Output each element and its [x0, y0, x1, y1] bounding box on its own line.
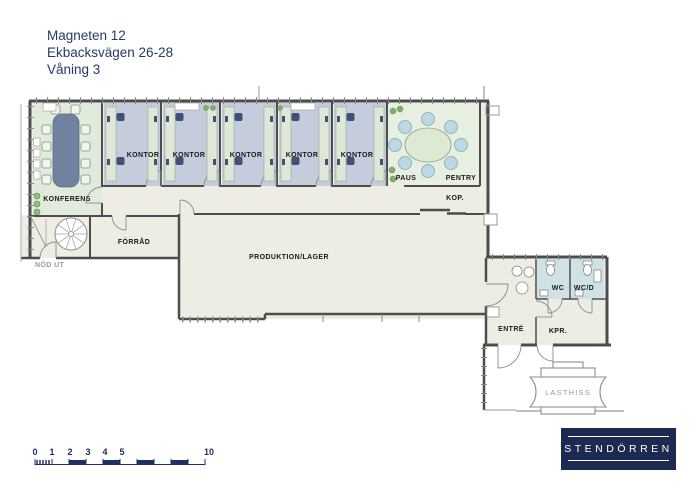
spiral-stair — [55, 218, 87, 250]
stendorren-logo: STENDÖRREN — [561, 428, 676, 470]
scale-0: 0 — [32, 447, 37, 457]
label-kop: KOP. — [446, 195, 464, 202]
label-entre: ENTRÉ — [498, 324, 524, 333]
label-forrad: FÖRRÅD — [118, 237, 150, 246]
label-produktion: PRODUKTION/LAGER — [249, 254, 329, 261]
label-nod-ut: NÖD UT — [35, 260, 65, 269]
label-kontor-1: KONTOR — [127, 152, 160, 159]
label-konferens: KONFERENS — [43, 196, 91, 203]
label-wc: WC — [552, 285, 564, 292]
label-kontor-2: KONTOR — [173, 152, 206, 159]
scale-1: 1 — [49, 447, 54, 457]
scale-4: 4 — [102, 447, 107, 457]
label-kpr: KPR. — [549, 328, 567, 335]
floorplan-sheet: Magneten 12 Ekbacksvägen 26-28 Våning 3 — [0, 0, 700, 495]
stendorren-logo-text: STENDÖRREN — [568, 436, 669, 461]
scale-10: 10 — [204, 447, 214, 457]
scale-2: 2 — [67, 447, 72, 457]
label-wcd: WC/D — [574, 285, 594, 292]
label-pentry: PENTRY — [446, 175, 477, 182]
plants — [34, 193, 40, 215]
label-kontor-3: KONTOR — [230, 152, 263, 159]
label-kontor-4: KONTOR — [286, 152, 319, 159]
scale-5: 5 — [119, 447, 124, 457]
label-paus: PAUS — [396, 175, 417, 182]
label-kontor-5: KONTOR — [341, 152, 374, 159]
floorplan-drawing: KONFERENS KONTOR KONTOR KONTOR KONTOR KO… — [0, 0, 700, 495]
scale-3: 3 — [85, 447, 90, 457]
label-lasthiss: LASTHISS — [545, 388, 591, 397]
scale-bar: 0 1 2 3 4 5 10 — [32, 447, 214, 465]
